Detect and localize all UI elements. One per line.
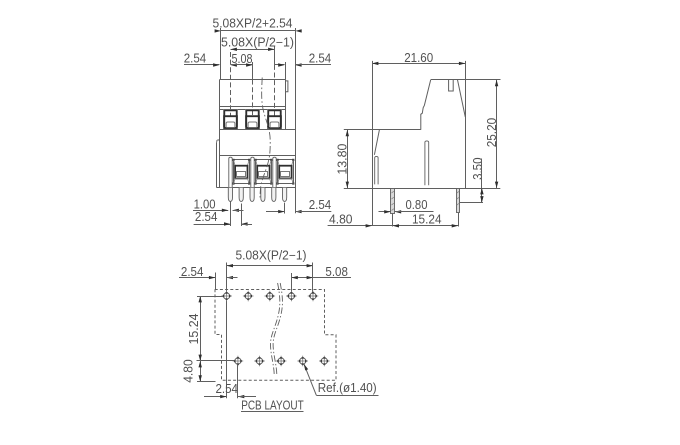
svg-text:4.80: 4.80 [329,212,353,226]
svg-text:5.08: 5.08 [325,265,348,279]
svg-text:2.54: 2.54 [195,210,218,224]
svg-text:4.80: 4.80 [182,359,196,383]
svg-text:2.54: 2.54 [309,52,332,66]
svg-text:15.24: 15.24 [412,212,442,226]
svg-text:5.08X(P/2−1): 5.08X(P/2−1) [236,249,307,263]
svg-text:5.08X(P/2−1): 5.08X(P/2−1) [221,35,294,49]
svg-text:2.54: 2.54 [184,52,207,66]
svg-text:0.80: 0.80 [406,198,428,212]
svg-text:Ref.(ø1.40): Ref.(ø1.40) [318,381,377,395]
svg-text:PCB LAYOUT: PCB LAYOUT [241,398,304,412]
svg-text:5.08: 5.08 [232,52,253,66]
svg-text:15.24: 15.24 [187,313,201,344]
svg-text:2.54: 2.54 [216,382,239,396]
svg-text:5.08XP/2+2.54: 5.08XP/2+2.54 [213,17,293,31]
svg-text:2.54: 2.54 [309,198,332,212]
svg-text:3.50: 3.50 [471,157,485,179]
svg-text:2.54: 2.54 [181,265,204,279]
svg-text:21.60: 21.60 [404,51,433,65]
